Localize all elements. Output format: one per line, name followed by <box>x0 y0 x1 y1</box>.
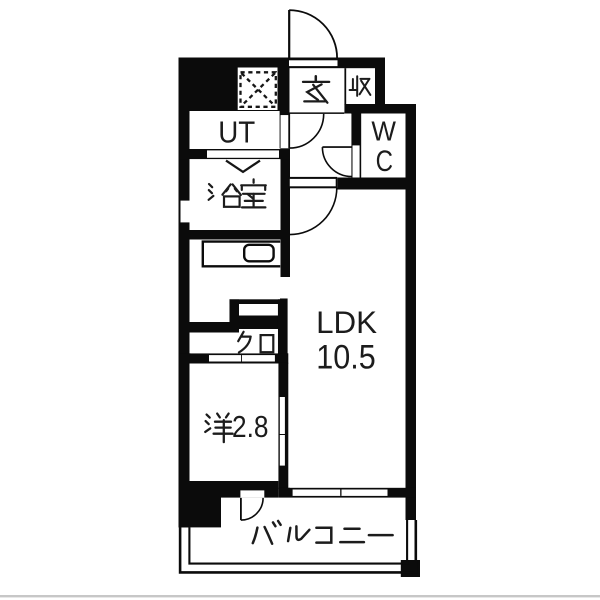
svg-text:UT: UT <box>218 115 255 150</box>
svg-text:2.8: 2.8 <box>232 409 269 444</box>
svg-text:W: W <box>371 116 396 147</box>
svg-text:LDK: LDK <box>316 305 377 340</box>
svg-text:10.5: 10.5 <box>316 338 376 376</box>
svg-text:C: C <box>376 145 393 178</box>
